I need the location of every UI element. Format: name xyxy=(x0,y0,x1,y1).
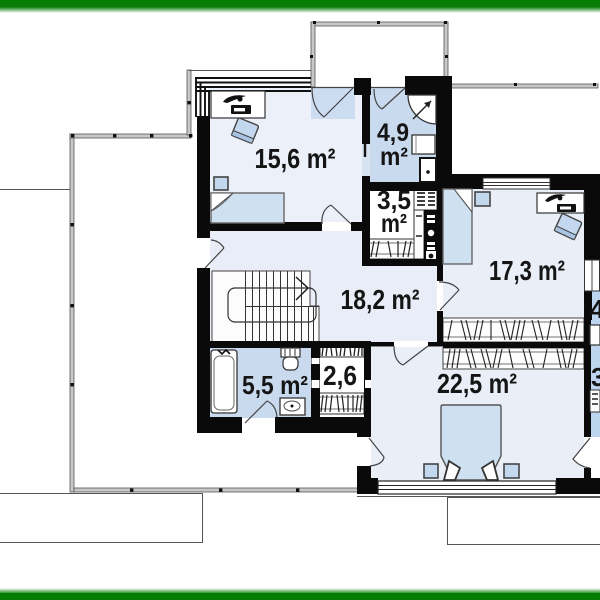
svg-text:m²: m² xyxy=(381,208,407,238)
svg-text:17,3 m²: 17,3 m² xyxy=(489,255,565,286)
svg-text:18,2 m²: 18,2 m² xyxy=(341,284,420,315)
svg-text:4,: 4, xyxy=(590,294,600,324)
svg-text:2,6: 2,6 xyxy=(323,360,357,391)
svg-text:m²: m² xyxy=(380,143,408,171)
svg-text:5,5 m²: 5,5 m² xyxy=(242,370,308,400)
svg-text:22,5 m²: 22,5 m² xyxy=(437,368,517,399)
svg-text:3: 3 xyxy=(591,362,600,392)
svg-text:15,6 m²: 15,6 m² xyxy=(255,143,336,174)
